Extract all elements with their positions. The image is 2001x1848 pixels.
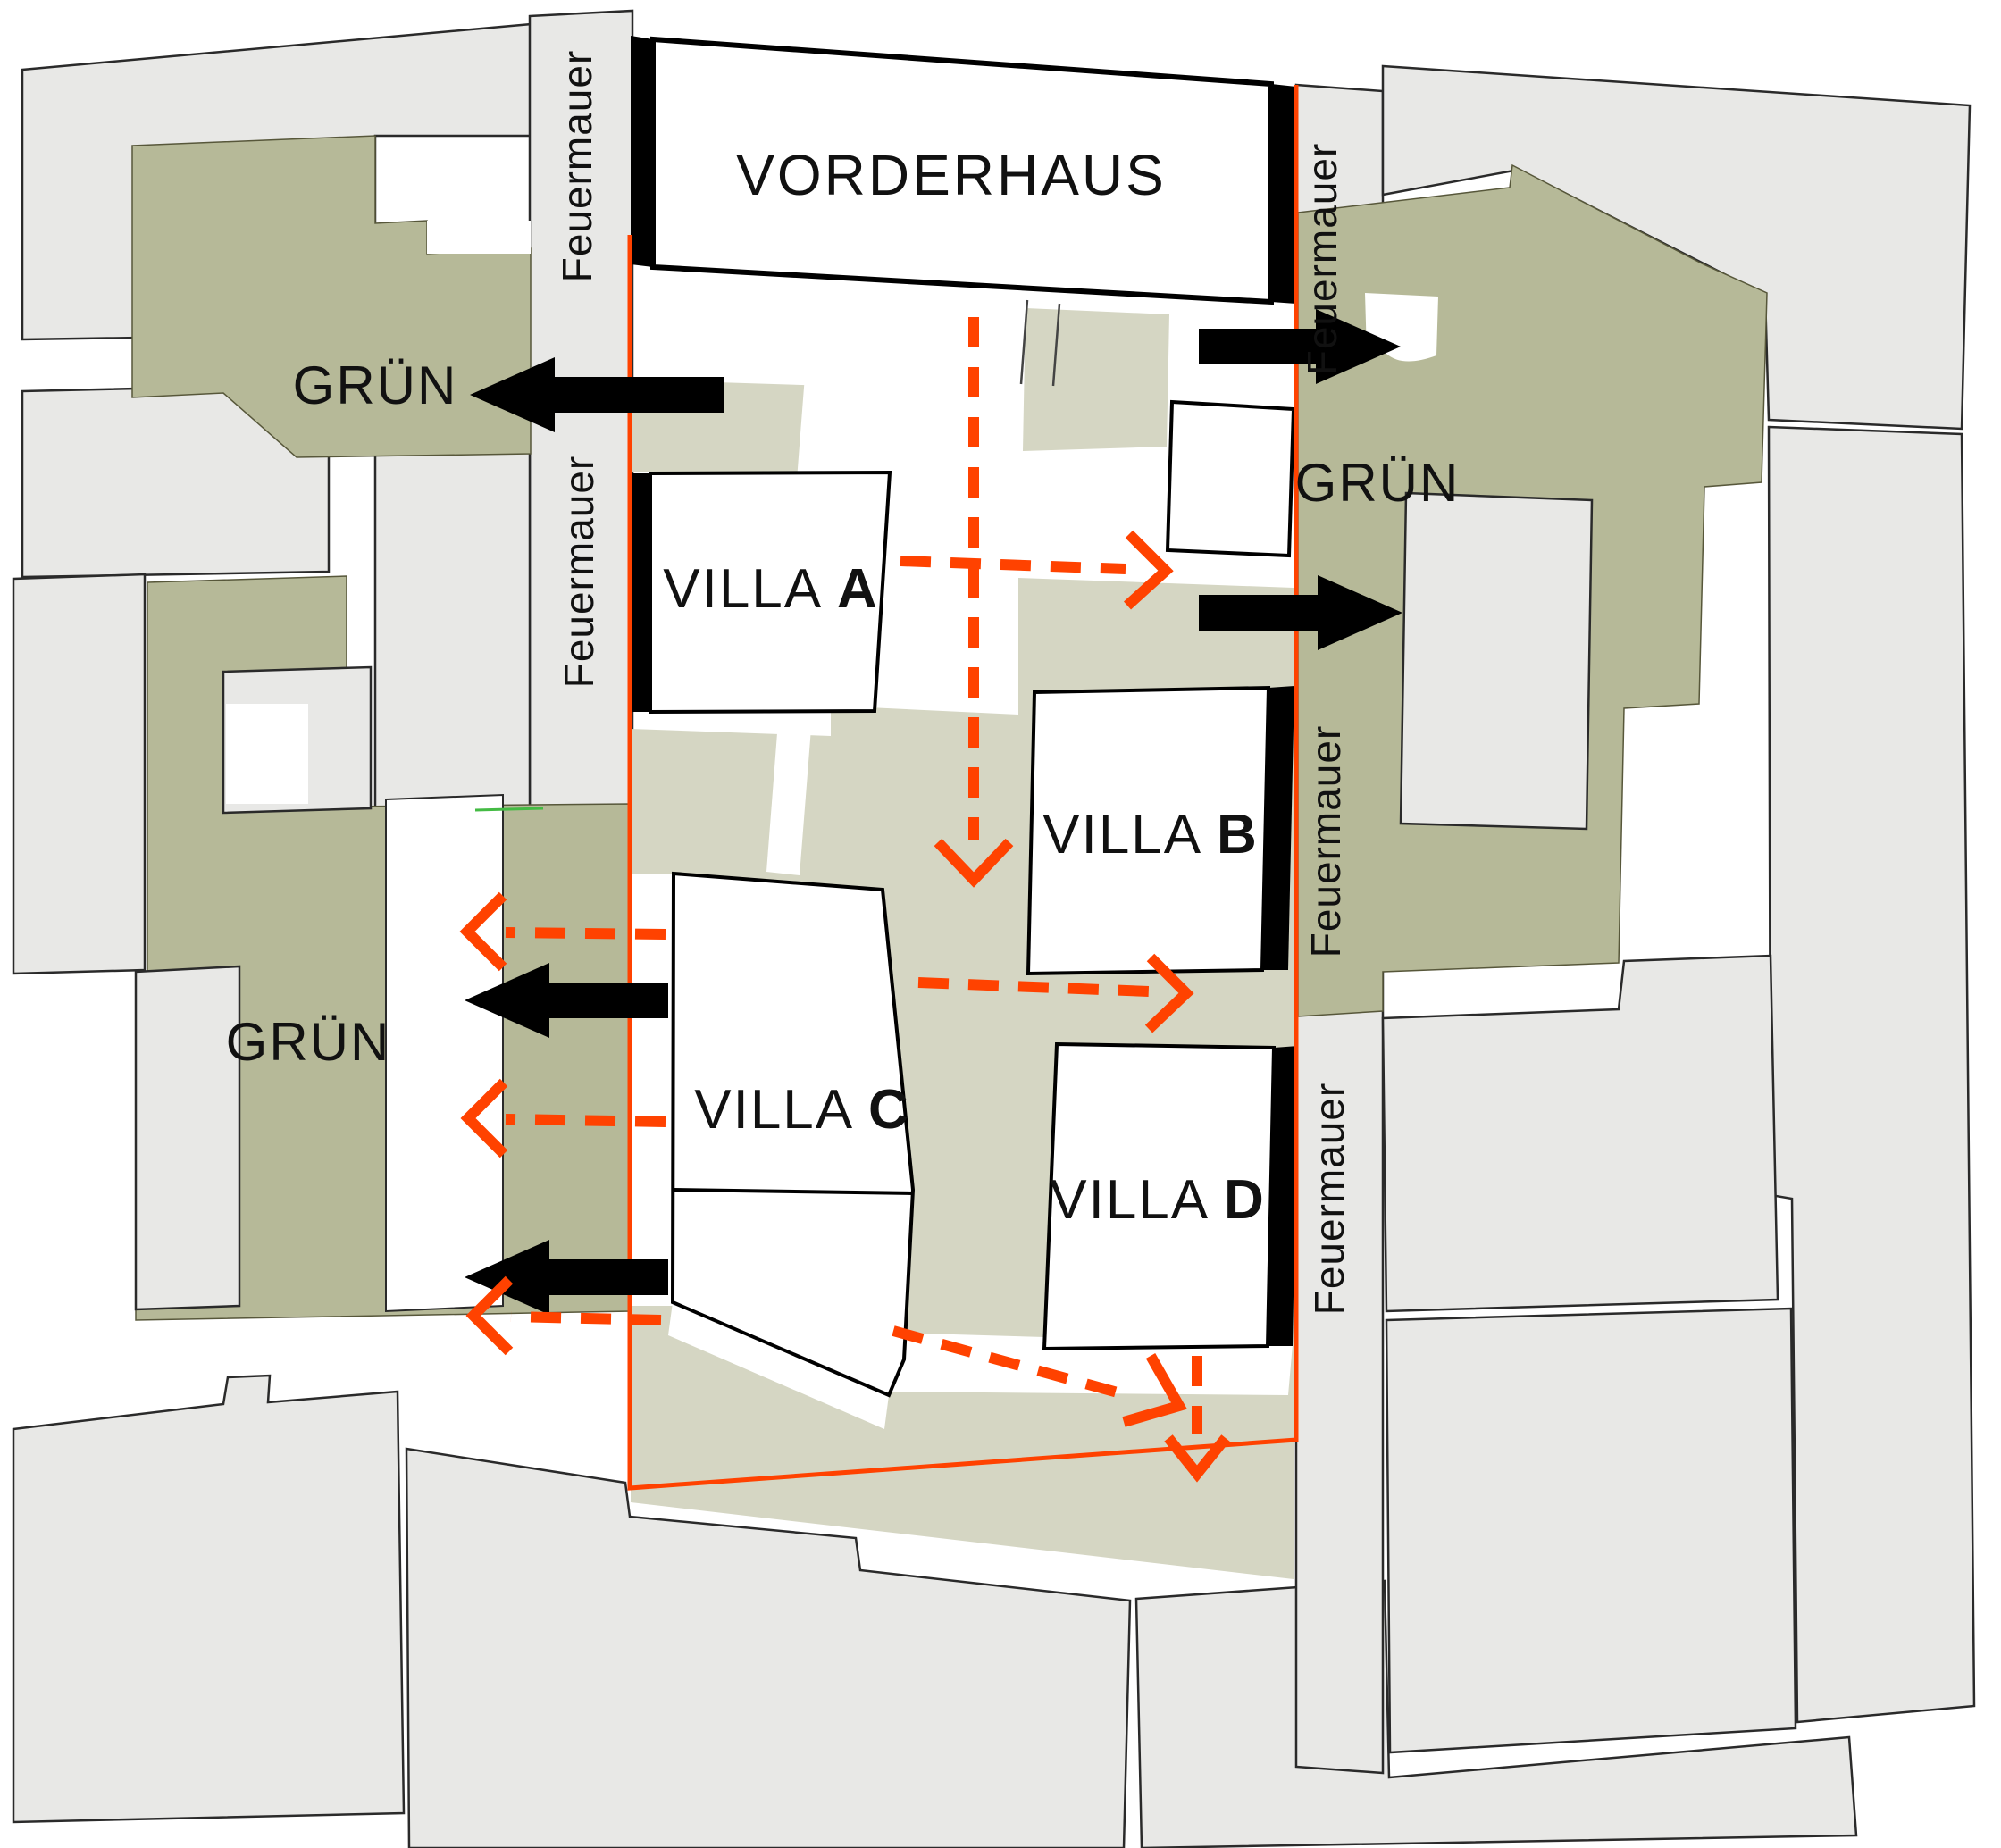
white-notch-topleft-green — [427, 221, 531, 254]
feuermauer-label-top-left: Feuermauer — [554, 50, 600, 283]
feuermauer-label-villa-b: Feuermauer — [1302, 725, 1349, 958]
dashed-arrow-left-3-icon — [511, 1317, 661, 1320]
white-building-strip-lower-left — [386, 795, 503, 1311]
gruen-label-right: GRÜN — [1295, 453, 1461, 513]
site-plan: VORDERHAUS VILLA A VILLA B VILLA C VILLA… — [0, 0, 2001, 1848]
site-plan-svg: VORDERHAUS VILLA A VILLA B VILLA C VILLA… — [0, 0, 2001, 1848]
villa-b-label: VILLA B — [1042, 804, 1258, 865]
dashed-arrow-villa-a-right-icon — [900, 561, 1126, 569]
white-notch-left — [226, 704, 308, 804]
villa-c-label: VILLA C — [694, 1079, 909, 1141]
feuermauer-label-villa-a: Feuermauer — [556, 456, 602, 689]
feuermauer-label-top-right: Feuermauer — [1299, 143, 1345, 376]
firewall-vorderhaus-right — [1271, 84, 1296, 304]
parcel-building-in-right-green — [1401, 493, 1592, 829]
villa-d-label: VILLA D — [1050, 1169, 1265, 1231]
gruen-label-lower-left: GRÜN — [226, 1012, 391, 1072]
parcel-block-in-lower-green — [136, 966, 239, 1309]
parcel-bottom-left-band — [13, 1376, 404, 1822]
firewall-vorderhaus-left — [631, 36, 653, 267]
courtyard-patch-upper-right — [1023, 308, 1169, 451]
parcel-right-lower-block — [1383, 956, 1778, 1311]
green-highlight-line — [475, 808, 543, 810]
parcel-right-column — [1769, 427, 1974, 1722]
parcel-bottom-right-block — [1386, 1309, 1796, 1752]
gruen-label-top-left: GRÜN — [293, 355, 458, 415]
vorderhaus-label: VORDERHAUS — [736, 143, 1167, 207]
villa-a-label: VILLA A — [663, 558, 878, 620]
firewall-villa-a — [630, 473, 650, 712]
feuermauer-label-villa-d: Feuermauer — [1306, 1083, 1352, 1316]
small-white-building — [1168, 402, 1294, 556]
parcel-left-lower-edge — [13, 574, 145, 974]
